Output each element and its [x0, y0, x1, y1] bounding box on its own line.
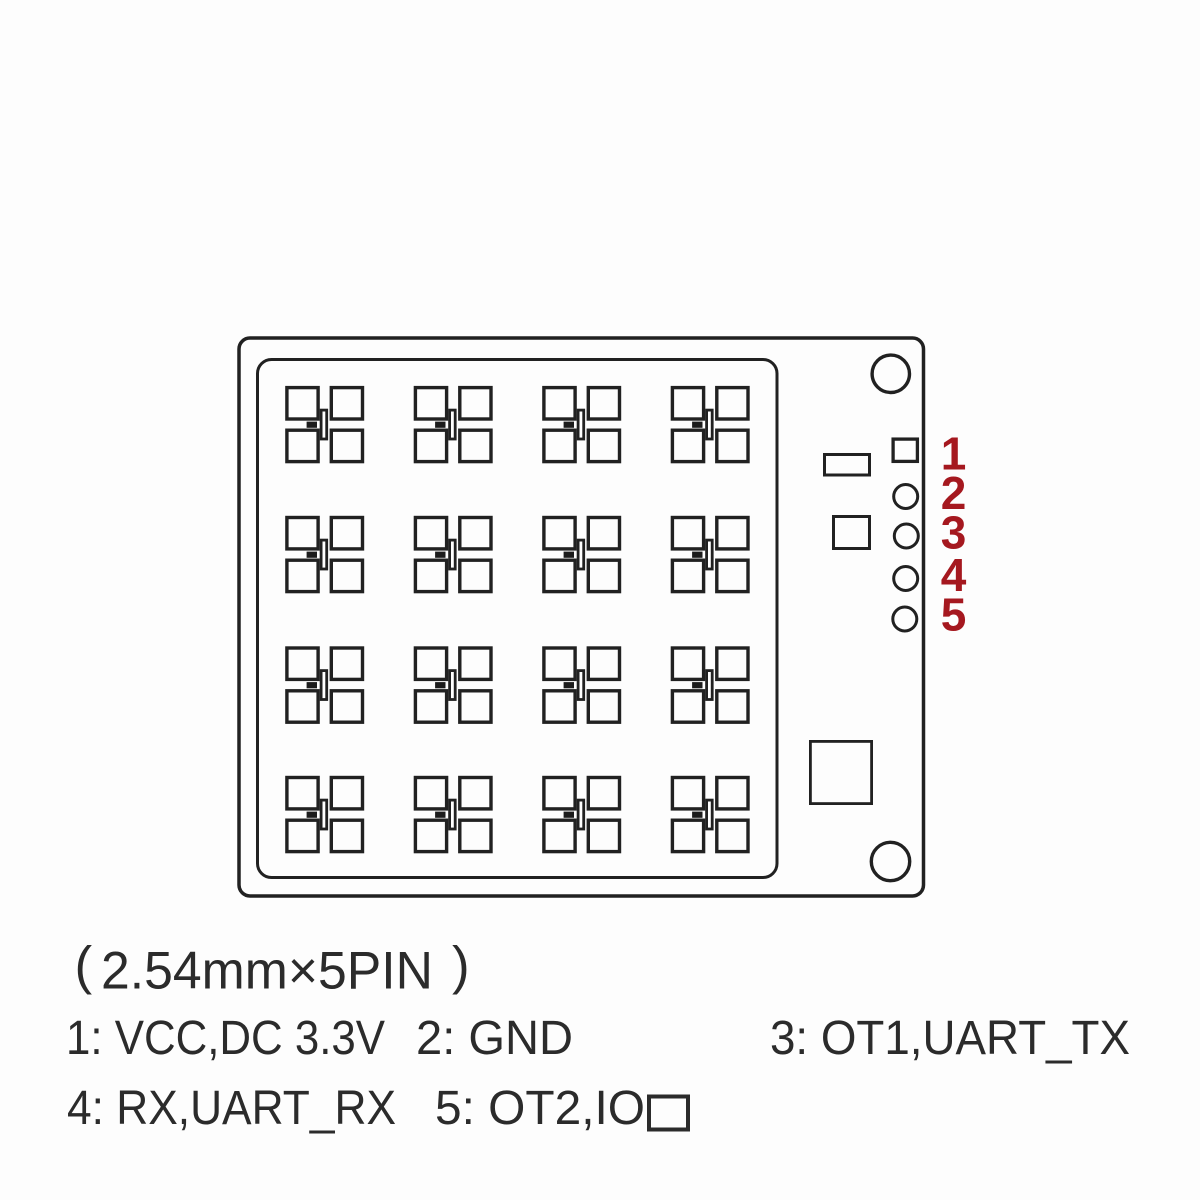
svg-text:2: GND: 2: GND [416, 1012, 573, 1065]
svg-text:5: OT2,IO: 5: OT2,IO [435, 1082, 645, 1135]
svg-text:2.54mm×5PIN: 2.54mm×5PIN [101, 942, 433, 1001]
svg-text:1: VCC,DC 3.3V: 1: VCC,DC 3.3V [66, 1012, 385, 1065]
svg-text:(: ( [75, 937, 93, 996]
svg-text:5: 5 [941, 589, 967, 641]
svg-text:): ) [452, 937, 470, 996]
svg-text:3: OT1,UART_TX: 3: OT1,UART_TX [770, 1012, 1130, 1065]
svg-text:4: RX,UART_RX: 4: RX,UART_RX [67, 1082, 396, 1135]
